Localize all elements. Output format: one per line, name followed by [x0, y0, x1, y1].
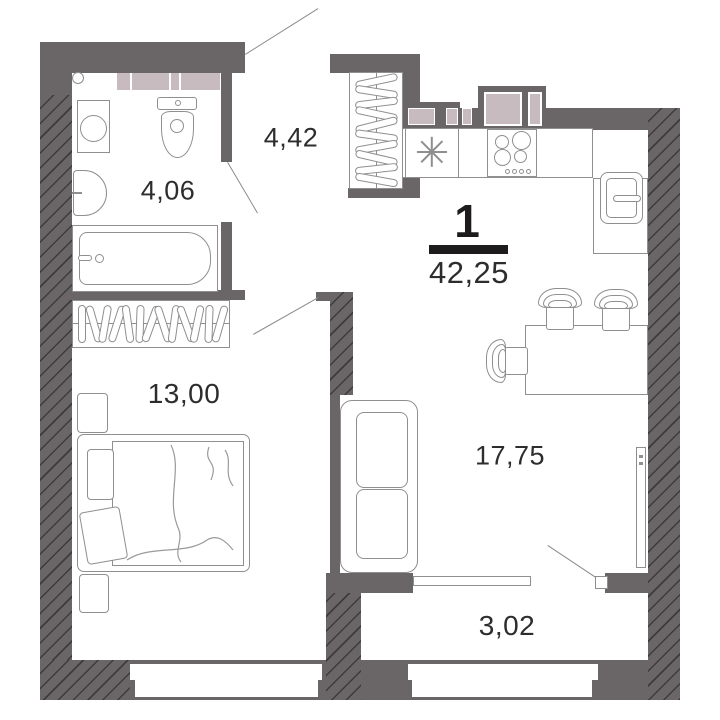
hanger-icon	[211, 305, 229, 344]
sofa-cushion	[356, 412, 408, 488]
nightstand-icon	[79, 574, 109, 613]
washing-machine-drum-icon	[80, 115, 107, 142]
stove-knob-icon	[519, 169, 524, 174]
toilet-button-icon	[175, 100, 181, 106]
chair-seat	[602, 307, 630, 331]
bath-cabinet-icon	[171, 73, 179, 90]
balcony-door-leaf	[547, 545, 596, 578]
burner-icon	[512, 131, 531, 150]
total-divider-bar	[429, 245, 508, 254]
rooms-count-label: 1	[454, 194, 480, 248]
wall-mid-column	[330, 292, 353, 395]
wall-left-upper	[40, 42, 72, 95]
tub-faucet-icon	[78, 255, 92, 261]
chair-back	[604, 301, 628, 309]
dining-table-icon	[525, 325, 648, 395]
kitchen-cabinet-icon	[446, 108, 458, 125]
wall-bath-right-lower	[221, 222, 232, 292]
hallway-wardrobe-icon	[349, 72, 403, 189]
hanger-rail	[353, 77, 399, 184]
wall-wardrobe-bottom	[348, 188, 420, 198]
nightstand-icon	[77, 393, 108, 433]
blanket-wrinkles	[113, 442, 243, 565]
floor-plan: 4,06 4,42 13,00 17,75 3,02 1 42,25	[0, 0, 720, 720]
chair-seat	[546, 306, 574, 330]
balcony-window	[412, 680, 592, 697]
chair-icon	[538, 288, 582, 334]
bathroom-area-label: 4,06	[141, 176, 196, 207]
total-area-label: 42,25	[429, 255, 509, 291]
kitchen-cabinet-icon	[484, 92, 522, 126]
kitchen-cabinet-icon	[408, 108, 435, 125]
bath-cabinet-icon	[117, 73, 130, 90]
balcony-window	[408, 664, 598, 680]
stove-knob-icon	[526, 169, 531, 174]
living-area-label: 17,75	[475, 441, 545, 472]
toilet-drain-icon	[170, 119, 184, 133]
living-balcony-window	[413, 576, 531, 586]
tub-drain-icon	[95, 254, 104, 263]
wall-mid-thin	[330, 395, 340, 575]
bedroom-window	[130, 664, 322, 680]
pillow-icon	[87, 449, 114, 500]
bathroom-door-leaf	[227, 162, 258, 214]
chair-back	[548, 300, 572, 308]
chair-seat	[504, 347, 528, 375]
bath-cabinet-icon	[132, 73, 169, 90]
burner-icon	[494, 149, 511, 166]
chair-back	[498, 349, 506, 373]
bath-cabinet-icon	[181, 73, 220, 90]
bedroom-door-leaf	[253, 297, 319, 335]
bedroom-window	[135, 680, 318, 697]
hanger-icon	[121, 305, 134, 344]
burner-icon	[514, 150, 527, 163]
sofa-cushion	[356, 489, 408, 559]
fridge-handle-icon	[613, 195, 641, 202]
tv-detail	[639, 455, 643, 458]
chair-icon	[486, 339, 532, 383]
hanger-icon	[189, 305, 205, 344]
basin-faucet-icon	[72, 192, 82, 194]
kitchen-cabinet-icon	[462, 108, 472, 125]
stove-knob-icon	[512, 169, 517, 174]
wall-balcony-right-seg	[605, 573, 648, 593]
entrance-door-leaf	[245, 8, 319, 55]
wall-left	[40, 95, 72, 700]
wall-bottom-left-corner	[40, 660, 130, 700]
stove-knob-icon	[505, 169, 510, 174]
bed-blanket	[112, 441, 244, 566]
drain-icon	[72, 72, 84, 84]
tv-icon	[636, 447, 646, 568]
wall-right	[648, 108, 680, 700]
bedroom-wardrobe-icon	[72, 300, 230, 348]
balcony-area-label: 3,02	[479, 610, 536, 642]
balcony-door-jamb	[595, 576, 608, 589]
wall-bath-right-upper	[221, 63, 232, 162]
chair-icon	[594, 289, 638, 335]
burner-icon	[495, 135, 509, 149]
tv-detail	[639, 462, 643, 465]
kitchen-cabinet-icon	[528, 92, 542, 126]
wardrobe-bars	[78, 305, 224, 343]
hallway-area-label: 4,42	[264, 123, 319, 154]
hanger-icon	[78, 305, 86, 343]
bedroom-area-label: 13,00	[148, 378, 221, 410]
wall-balcony-lintel	[326, 573, 413, 593]
